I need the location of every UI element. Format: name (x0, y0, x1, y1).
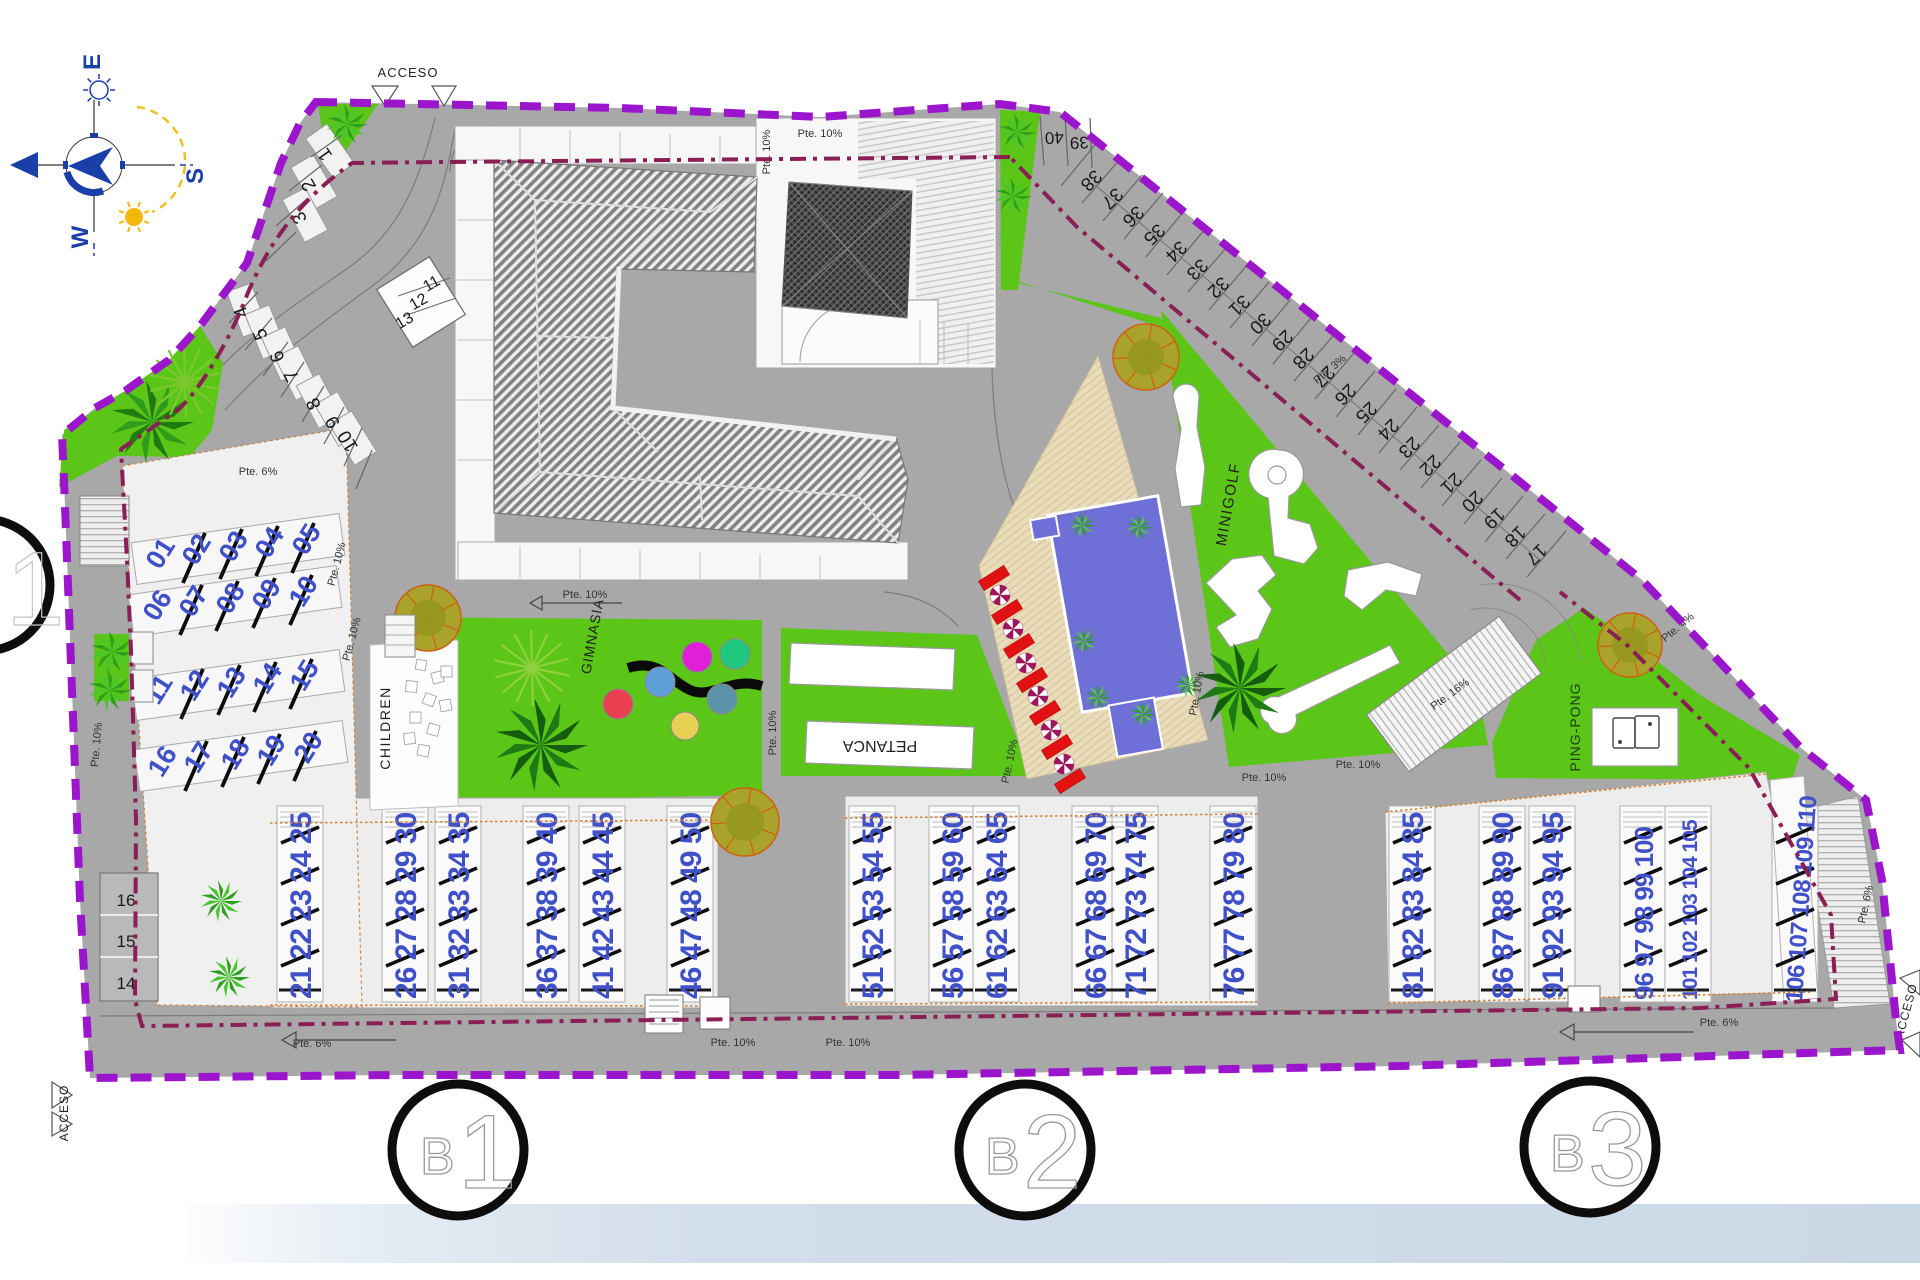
svg-text:36 37 38 39 40: 36 37 38 39 40 (531, 812, 564, 999)
svg-text:PETANCA: PETANCA (842, 737, 917, 754)
svg-text:Pte. 10%: Pte. 10% (1242, 772, 1287, 784)
svg-text:3: 3 (1588, 1091, 1646, 1208)
svg-text:B: B (985, 1128, 1020, 1186)
svg-text:Pte. 10%: Pte. 10% (767, 710, 779, 755)
svg-text:26 27 28 29 30: 26 27 28 29 30 (390, 812, 423, 999)
svg-text:91 92 93 94 95: 91 92 93 94 95 (1537, 812, 1570, 999)
svg-text:71 72 73 74 75: 71 72 73 74 75 (1120, 812, 1153, 999)
svg-text:Pte. 10%: Pte. 10% (826, 1037, 871, 1049)
svg-text:W: W (67, 225, 94, 248)
svg-text:15: 15 (117, 932, 136, 951)
svg-text:51 52 53 54 55: 51 52 53 54 55 (857, 812, 890, 999)
svg-text:14: 14 (117, 974, 136, 993)
svg-text:101 102 103 104 105: 101 102 103 104 105 (1679, 819, 1702, 1000)
svg-text:1: 1 (6, 531, 64, 648)
svg-text:61 62 63 64 65: 61 62 63 64 65 (981, 812, 1014, 999)
svg-text:PING-PONG: PING-PONG (1567, 682, 1583, 771)
svg-text:39: 39 (1069, 133, 1089, 153)
svg-text:E: E (79, 54, 106, 70)
svg-text:96 97 98 99 100: 96 97 98 99 100 (1629, 827, 1659, 1000)
svg-text:46 47 48 49 50: 46 47 48 49 50 (675, 812, 708, 999)
svg-text:31 32 33 34 35: 31 32 33 34 35 (443, 812, 476, 999)
svg-text:81 82 83 84 85: 81 82 83 84 85 (1397, 812, 1430, 999)
svg-text:41 42 43 44 45: 41 42 43 44 45 (587, 812, 620, 999)
svg-text:86 87 88 89 90: 86 87 88 89 90 (1487, 812, 1520, 999)
svg-text:40: 40 (1044, 128, 1064, 148)
svg-text:CHILDREN: CHILDREN (377, 686, 393, 770)
svg-text:S: S (182, 168, 209, 184)
svg-text:16: 16 (117, 891, 136, 910)
svg-text:21 22 23 24 25: 21 22 23 24 25 (285, 812, 318, 999)
svg-text:2: 2 (1023, 1094, 1081, 1211)
svg-text:ACCESO: ACCESO (57, 1085, 71, 1142)
svg-text:1: 1 (458, 1094, 516, 1211)
svg-text:Pte. 10%: Pte. 10% (711, 1037, 756, 1049)
svg-text:Pte. 10%: Pte. 10% (798, 128, 843, 140)
svg-text:Pte. 10%: Pte. 10% (1336, 759, 1381, 771)
svg-text:Pte. 10%: Pte. 10% (563, 589, 608, 601)
svg-text:Pte. 6%: Pte. 6% (239, 466, 278, 478)
svg-text:Pte. 10%: Pte. 10% (761, 129, 773, 174)
svg-text:76 77 78 79 80: 76 77 78 79 80 (1218, 812, 1251, 999)
svg-text:Pte. 6%: Pte. 6% (1700, 1017, 1739, 1029)
svg-text:66 67 68 69 70: 66 67 68 69 70 (1080, 812, 1113, 999)
svg-text:B: B (420, 1128, 455, 1186)
svg-text:B: B (1550, 1125, 1585, 1183)
svg-text:ACCESO: ACCESO (378, 65, 439, 80)
svg-text:56 57 58 59 60: 56 57 58 59 60 (937, 812, 970, 999)
